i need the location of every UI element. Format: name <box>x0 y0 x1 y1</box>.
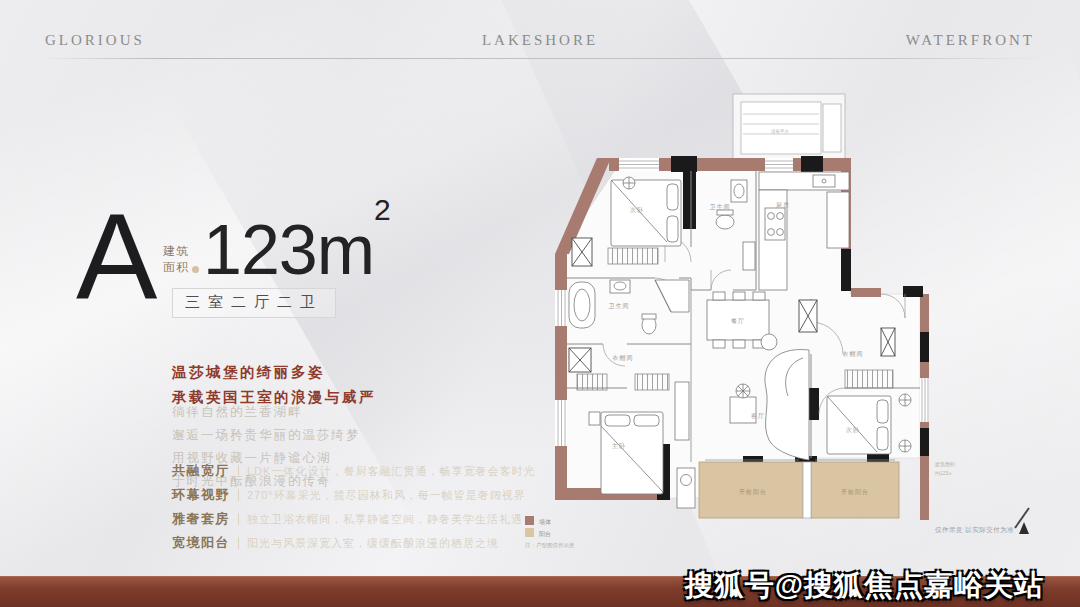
room-label-balcony-left: 开敞阳台 <box>739 489 767 496</box>
room-label-living: 客厅 <box>751 412 765 420</box>
header: GLORIOUS LAKESHORE WATERFRONT <box>45 32 1035 54</box>
feature-row: 环幕视野 270°环幕采光，揽尽园林和风，每一帧皆是奢阔视界 <box>172 487 535 503</box>
header-divider <box>40 58 1040 59</box>
feature-row: 共融宽厅 LDK一体化设计，餐厨客融汇贯通，畅享宽奢会客时光 <box>172 463 535 479</box>
header-center: LAKESHORE <box>45 32 1035 49</box>
headline-line1: 温莎城堡的绮丽多姿 <box>172 360 376 385</box>
unit-layout: 三室二厅二卫 <box>172 288 336 318</box>
svg-text:建筑面积: 建筑面积 <box>934 461 955 468</box>
feature-row: 宽境阳台 阳光与风景深宽入室，缓缓酝酿浪漫的栖居之境 <box>172 535 535 551</box>
room-label-master: 主卧 <box>612 442 626 449</box>
unit-type-letter: A <box>76 196 157 318</box>
header-right: WATERFRONT <box>906 32 1035 49</box>
north-arrow-icon <box>1015 508 1029 534</box>
area-value: 123m2 <box>203 210 390 290</box>
room-label-closet-left: 衣帽间 <box>612 354 634 362</box>
room-label-master-bath: 卫生间 <box>609 302 630 310</box>
room-label-bedroom-right: 次卧 <box>846 426 860 433</box>
legend-label-balcony: 阳台 <box>539 531 551 538</box>
area-superscript: 2 <box>374 193 390 226</box>
plan-note: 建筑面积 约123㎡ <box>934 461 955 477</box>
watermark: 搜狐号@搜狐焦点嘉峪关站 <box>685 566 1044 606</box>
area-label: 建筑 面积 <box>163 244 189 275</box>
room-label-kitchen: 厨房 <box>776 201 790 208</box>
plan-legend: 墙体 阳台 注：户型图仅作示意 <box>525 516 575 549</box>
legend-label-wall: 墙体 <box>539 519 551 526</box>
legend-note: 注：户型图仅作示意 <box>525 542 575 549</box>
balconies <box>699 462 899 518</box>
room-label-bath-top: 卫生间 <box>710 203 731 211</box>
room-label-balcony-right: 开敞阳台 <box>841 489 869 496</box>
plan-disclaimer: 仅作示意 以实际交付为准 <box>935 526 1014 534</box>
feature-list: 共融宽厅 LDK一体化设计，餐厨客融汇贯通，畅享宽奢会客时光 环幕视野 270°… <box>172 463 535 559</box>
room-label-closet-right: 衣帽间 <box>842 350 864 358</box>
room-label-dining: 餐厅 <box>731 317 745 324</box>
feature-row: 雅奢套房 独立卫浴衣帽间，私享静谧空间，静奢美学生活礼遇 <box>172 511 535 527</box>
room-label-bedroom-top: 次卧 <box>630 206 644 213</box>
floorplan: 设备平台 <box>515 82 1045 552</box>
room-label-platform: 设备平台 <box>771 128 789 134</box>
area-dot <box>192 266 199 273</box>
equipment-platform <box>733 94 845 162</box>
svg-text:约123㎡: 约123㎡ <box>935 470 953 477</box>
